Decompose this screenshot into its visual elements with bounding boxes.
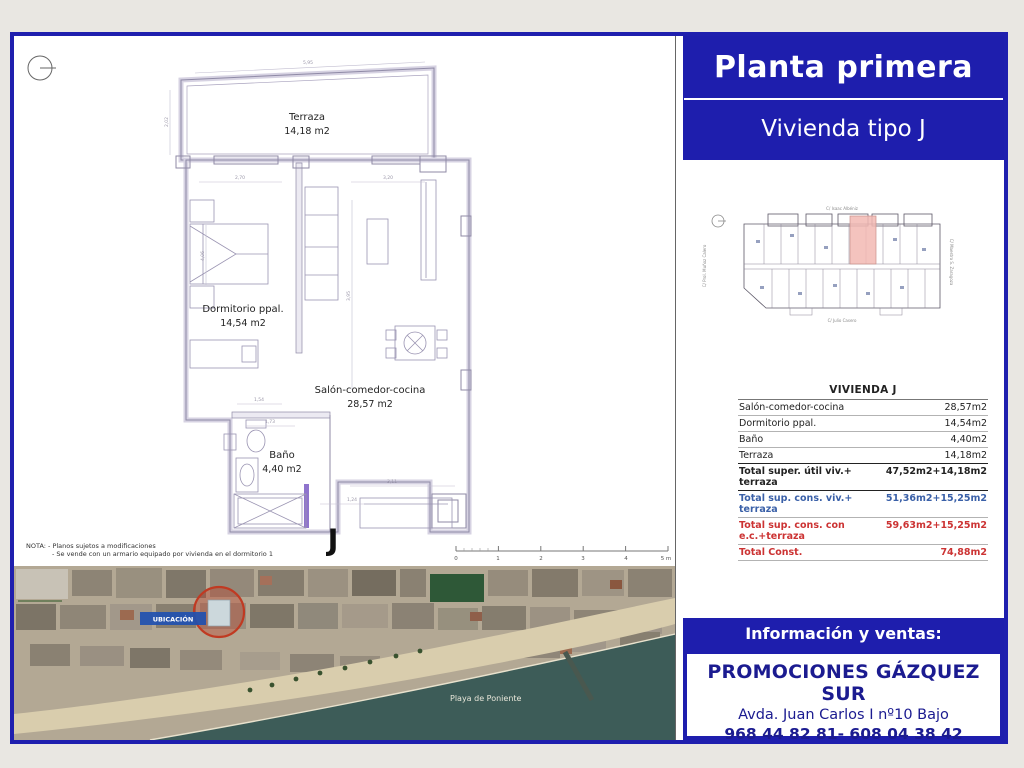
svg-text:5,95: 5,95 bbox=[303, 60, 313, 66]
apartment-walls bbox=[176, 156, 471, 532]
company-name: PROMOCIONES GÁZQUEZ SUR bbox=[687, 661, 1000, 705]
table-title: VIVIENDA J bbox=[738, 384, 988, 396]
dormitorio-label: Dormitorio ppal. bbox=[202, 304, 283, 315]
svg-text:2: 2 bbox=[539, 556, 543, 562]
title-box: Planta primera Vivienda tipo J bbox=[683, 36, 1004, 160]
scale-bar: 0 1 2 3 4 5 m bbox=[454, 546, 671, 562]
svg-text:5 m: 5 m bbox=[661, 556, 672, 562]
salon-area: 28,57 m2 bbox=[347, 399, 393, 410]
keyplan-north-icon bbox=[712, 215, 726, 227]
plan-panel: 5,95 2,70 3,20 2,02 4,06 3,95 1,54 1,73 … bbox=[14, 36, 676, 740]
street-top: C/ Isaac Albéniz bbox=[826, 206, 858, 211]
svg-text:4,06: 4,06 bbox=[200, 251, 206, 261]
dormitorio-area: 14,54 m2 bbox=[220, 318, 266, 329]
terraza-area: 14,18 m2 bbox=[284, 126, 330, 137]
building-outline bbox=[744, 214, 940, 315]
contact-box: PROMOCIONES GÁZQUEZ SUR Avda. Juan Carlo… bbox=[683, 650, 1004, 740]
table-row: Dormitorio ppal.14,54m2 bbox=[738, 416, 988, 432]
svg-text:3,20: 3,20 bbox=[383, 175, 393, 181]
svg-text:1: 1 bbox=[496, 556, 500, 562]
bano-area: 4,40 m2 bbox=[262, 464, 301, 475]
sheet-frame: 5,95 2,70 3,20 2,02 4,06 3,95 1,54 1,73 … bbox=[10, 32, 1008, 744]
svg-text:3,95: 3,95 bbox=[346, 291, 352, 301]
terraza-label: Terraza bbox=[288, 112, 325, 123]
floor-plan-drawing: 5,95 2,70 3,20 2,02 4,06 3,95 1,54 1,73 … bbox=[14, 36, 675, 566]
table-row-total-cons: Total sup. cons. viv.+ terraza51,36m2+15… bbox=[738, 491, 988, 518]
table-row-total-const: Total Const.74,88m2 bbox=[738, 545, 988, 561]
beach-label: Playa de Poniente bbox=[450, 694, 522, 703]
bano-label: Baño bbox=[269, 450, 294, 461]
salon-label: Salón-comedor-cocina bbox=[315, 384, 426, 396]
table-row-total-cons-ec: Total sup. cons. con e.c.+terraza59,63m2… bbox=[738, 518, 988, 545]
areas-table: VIVIENDA J Salón-comedor-cocina28,57m2 D… bbox=[738, 384, 988, 561]
svg-text:0: 0 bbox=[454, 556, 458, 562]
company-address: Avda. Juan Carlos I nº10 Bajo bbox=[687, 707, 1000, 723]
svg-text:1,73: 1,73 bbox=[265, 419, 275, 425]
location-label: UBICACIÓN bbox=[140, 612, 206, 625]
table-row: Baño4,40m2 bbox=[738, 432, 988, 448]
svg-text:2,02: 2,02 bbox=[164, 117, 170, 127]
svg-text:2,70: 2,70 bbox=[235, 175, 245, 181]
svg-text:3: 3 bbox=[581, 556, 585, 562]
page-subtitle: Vivienda tipo J bbox=[683, 100, 1004, 158]
aerial-photo: UBICACIÓN Playa de Poniente bbox=[14, 566, 675, 740]
company-phones: 968 44 82 81- 608 04 38 42 bbox=[687, 725, 1000, 743]
brochure-page: { "header": { "title": "Planta primera",… bbox=[0, 0, 1024, 768]
street-left: C/ Prol. Muñoz Calero bbox=[702, 244, 707, 287]
key-plan: C/ Isaac Albéniz C/ Julio Casero C/ Prol… bbox=[683, 191, 1004, 349]
street-bottom: C/ Julio Casero bbox=[828, 318, 857, 323]
sales-bar: Información y ventas: bbox=[683, 618, 1004, 650]
table-row: Salón-comedor-cocina28,57m2 bbox=[738, 400, 988, 416]
info-panel: Planta primera Vivienda tipo J bbox=[683, 36, 1004, 740]
page-title: Planta primera bbox=[683, 36, 1004, 98]
street-right: C/ Maestro S. Zaragoza bbox=[949, 239, 954, 286]
svg-text:4: 4 bbox=[624, 556, 628, 562]
bath-door bbox=[304, 484, 309, 528]
note-line-1: NOTA: - Planos sujetos a modificaciones bbox=[26, 542, 446, 550]
note-line-2: - Se vende con un armario equipado por v… bbox=[26, 550, 446, 558]
highlighted-unit bbox=[850, 216, 876, 264]
table-row-total-util: Total super. útil viv.+ terraza47,52m2+1… bbox=[738, 464, 988, 491]
plan-note: NOTA: - Planos sujetos a modificaciones … bbox=[26, 542, 446, 558]
svg-text:1,24: 1,24 bbox=[347, 497, 357, 503]
table-row: Terraza14,18m2 bbox=[738, 448, 988, 464]
svg-text:1,54: 1,54 bbox=[254, 397, 264, 403]
svg-text:3,11: 3,11 bbox=[387, 479, 397, 485]
north-icon bbox=[28, 56, 56, 80]
svg-text:UBICACIÓN: UBICACIÓN bbox=[153, 615, 194, 624]
